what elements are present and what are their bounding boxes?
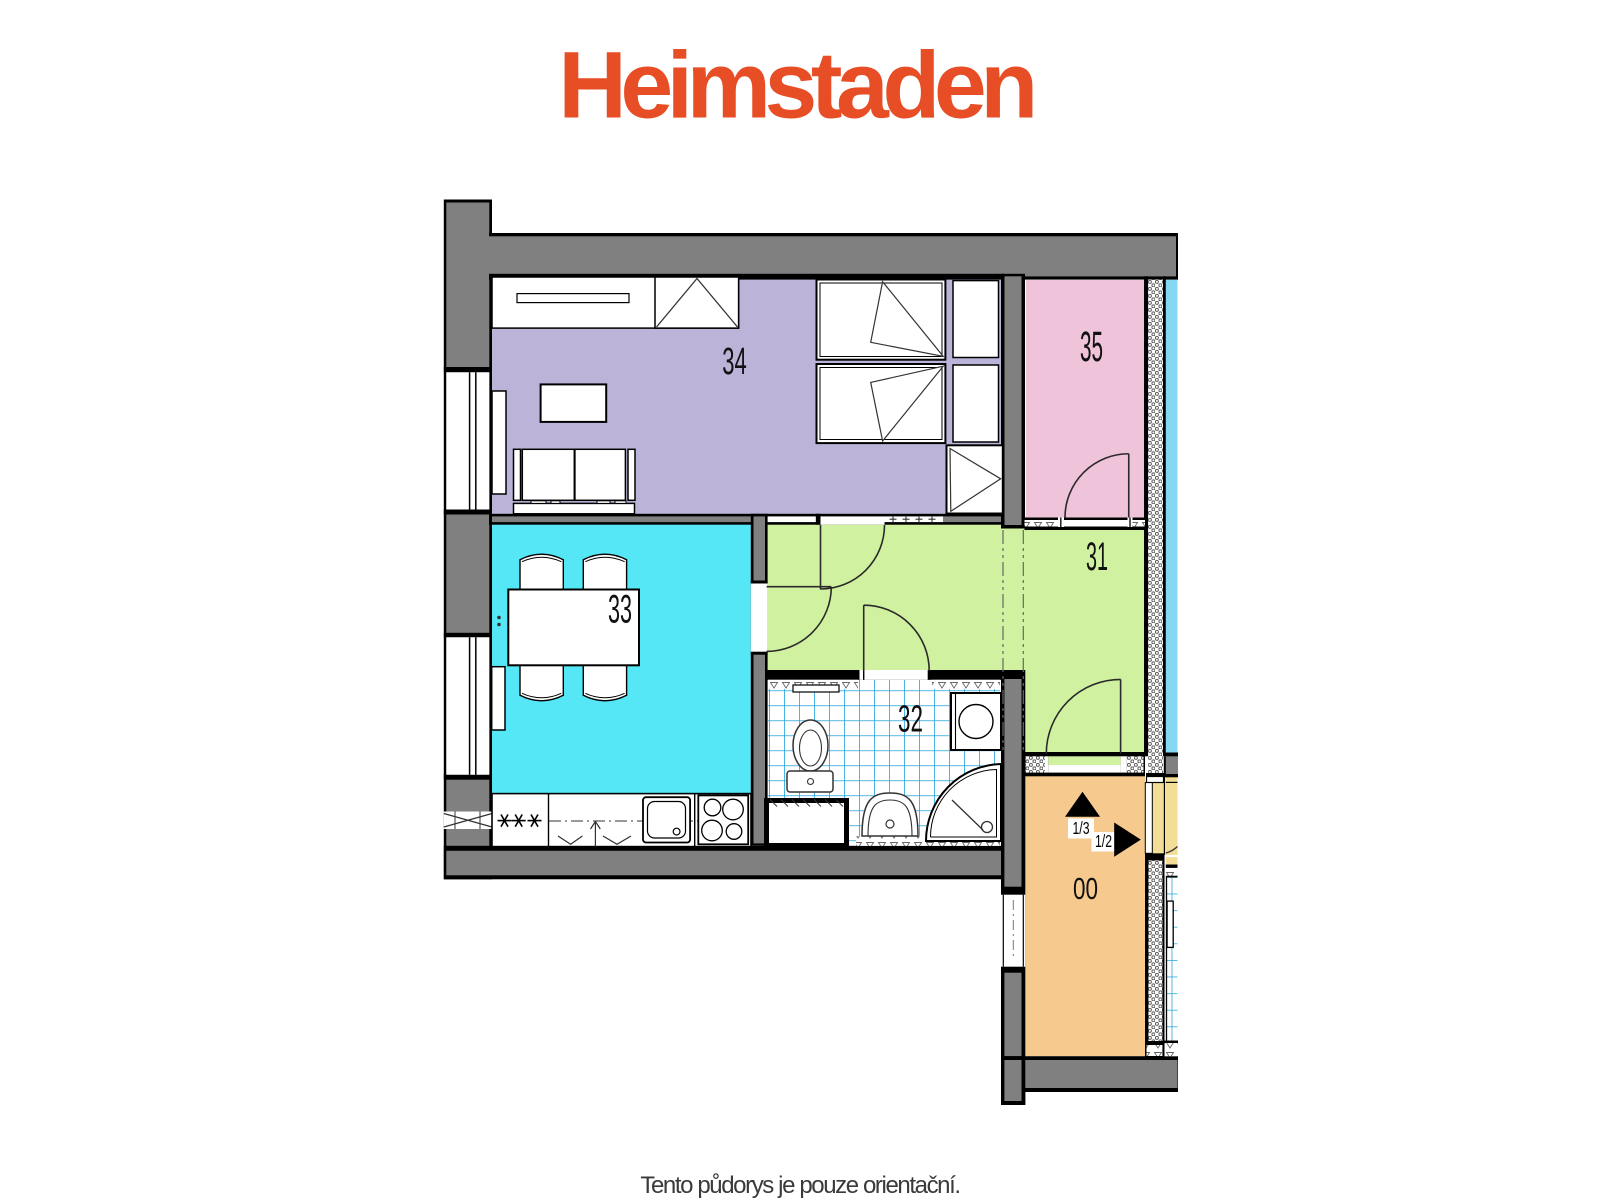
svg-text:1/2: 1/2 (1095, 831, 1112, 851)
svg-text:Heimstaden: Heimstaden (558, 33, 1033, 139)
svg-text:32: 32 (898, 699, 923, 741)
svg-text:00: 00 (1073, 871, 1098, 906)
svg-text:34: 34 (722, 341, 747, 383)
svg-text:Tento půdorys je pouze orienta: Tento půdorys je pouze orientační. (640, 1172, 959, 1199)
svg-text:35: 35 (1080, 323, 1103, 371)
svg-text:1/3: 1/3 (1073, 818, 1090, 838)
svg-text:31: 31 (1086, 535, 1108, 579)
svg-text:33: 33 (608, 588, 632, 632)
